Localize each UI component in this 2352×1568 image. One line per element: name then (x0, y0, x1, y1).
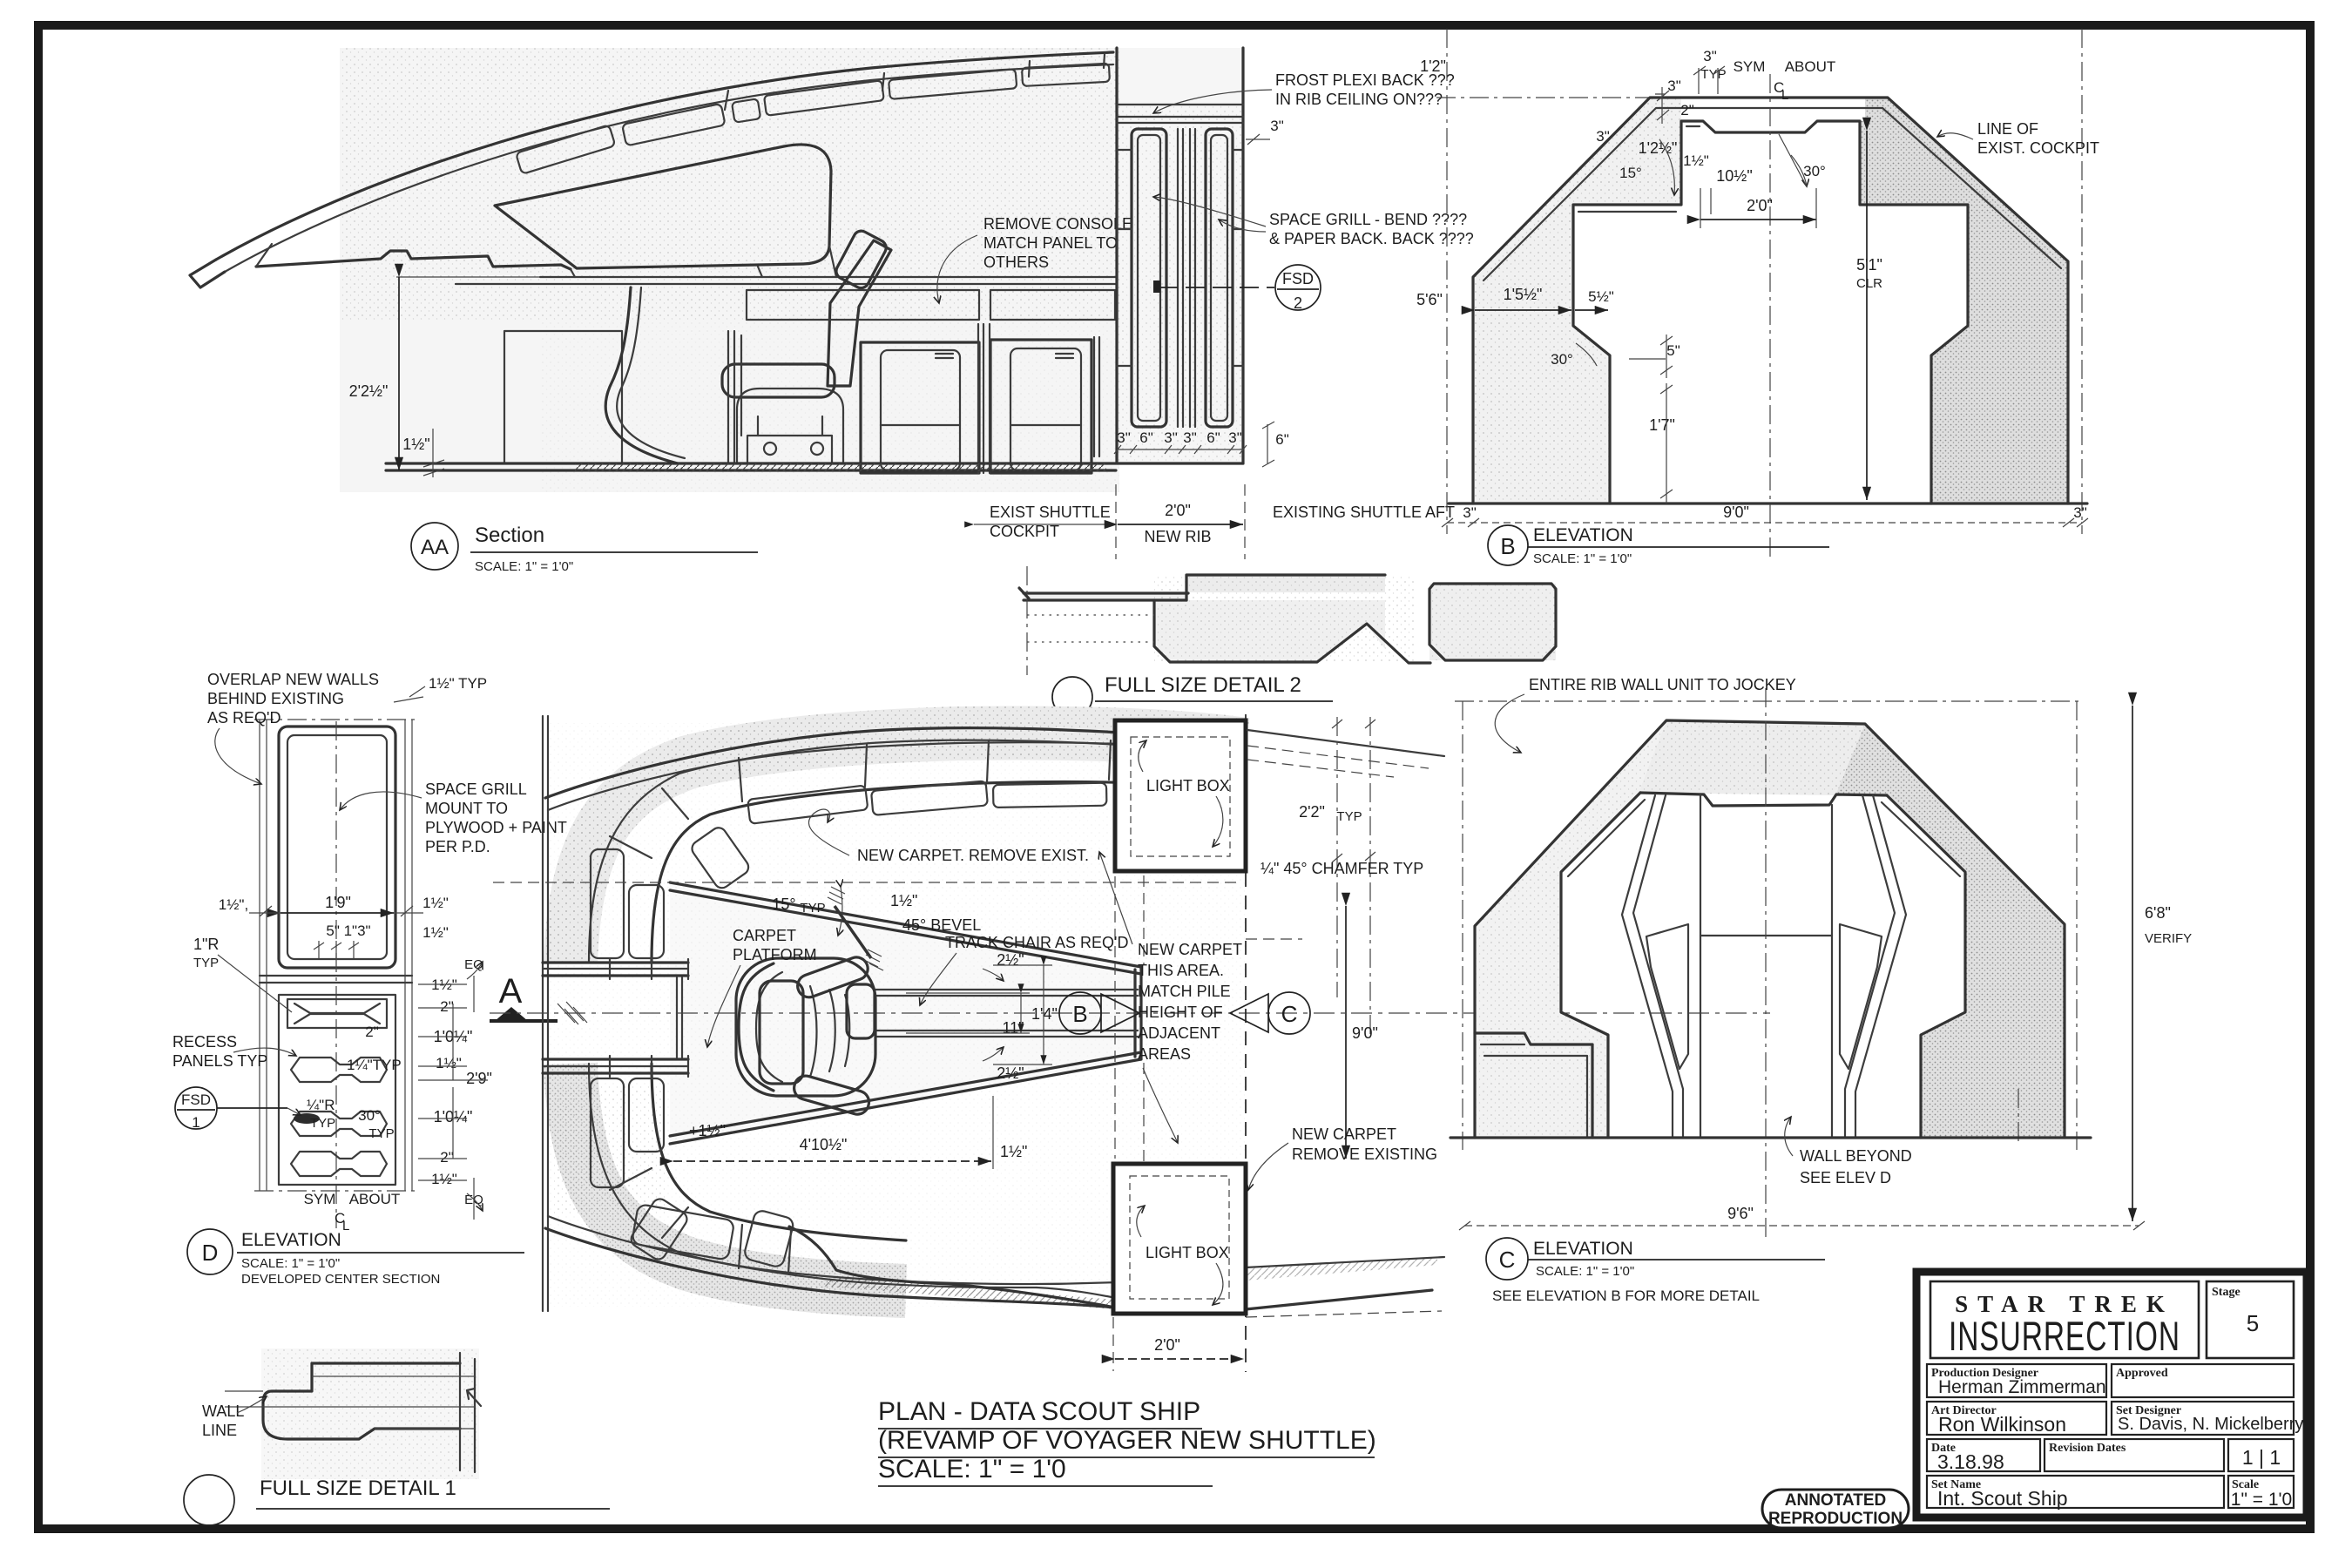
svg-text:EXISTING SHUTTLE AFT: EXISTING SHUTTLE AFT (1273, 504, 1455, 521)
svg-text:1½" TYP: 1½" TYP (429, 675, 487, 692)
svg-text:WALL BEYOND: WALL BEYOND (1800, 1147, 1912, 1165)
svg-text:Approved: Approved (2116, 1367, 2168, 1380)
svg-text:VERIFY: VERIFY (2145, 931, 2192, 946)
svg-text:2'2½": 2'2½" (349, 382, 389, 400)
svg-text:2: 2 (1294, 294, 1302, 312)
svg-text:3": 3" (1270, 118, 1284, 134)
svg-text:Int. Scout Ship: Int. Scout Ship (1937, 1487, 2068, 1510)
svg-text:5½": 5½" (1588, 288, 1614, 305)
svg-text:6": 6" (1139, 429, 1153, 446)
svg-text:L: L (1781, 88, 1788, 103)
svg-text:30°: 30° (1551, 351, 1573, 368)
svg-text:PLAN - DATA SCOUT SHIP: PLAN - DATA SCOUT SHIP (878, 1397, 1200, 1426)
svg-text:3": 3" (2073, 504, 2087, 521)
svg-text:9'6": 9'6" (1727, 1205, 1754, 1222)
svg-text:RECESS: RECESS (172, 1033, 237, 1051)
svg-text:ABOUT: ABOUT (349, 1191, 401, 1207)
svg-text:PLATFORM: PLATFORM (733, 946, 817, 963)
svg-text:ELEVATION: ELEVATION (241, 1230, 341, 1250)
svg-text:CLR: CLR (1856, 276, 1882, 291)
svg-text:3": 3" (1596, 128, 1610, 145)
svg-text:ELEVATION: ELEVATION (1533, 525, 1633, 545)
svg-text:9'0": 9'0" (1723, 504, 1749, 521)
svg-text:15°: 15° (772, 896, 795, 913)
svg-text:TYP: TYP (193, 956, 219, 970)
svg-text:5" 1"3": 5" 1"3" (326, 923, 370, 939)
svg-text:A: A (499, 972, 523, 1010)
svg-text:COCKPIT: COCKPIT (990, 523, 1059, 540)
svg-text:REMOVE EXISTING: REMOVE EXISTING (1292, 1146, 1437, 1163)
svg-text:B: B (1072, 1001, 1087, 1027)
svg-text:NEW CARPET. REMOVE EXIST.: NEW CARPET. REMOVE EXIST. (857, 847, 1089, 864)
svg-text:SCALE: 1" = 1'0": SCALE: 1" = 1'0" (1533, 551, 1632, 566)
svg-text:LINE OF: LINE OF (1977, 120, 2038, 138)
svg-text:ADJACENT: ADJACENT (1138, 1024, 1220, 1042)
svg-text:FULL SIZE DETAIL 2: FULL SIZE DETAIL 2 (1105, 673, 1301, 697)
svg-text:IN RIB CEILING ON???: IN RIB CEILING ON??? (1275, 91, 1443, 108)
svg-text:Stage: Stage (2212, 1286, 2240, 1299)
svg-text:EXIST SHUTTLE: EXIST SHUTTLE (990, 504, 1111, 521)
svg-text:FSD: FSD (1282, 270, 1314, 287)
svg-text:FULL SIZE DETAIL 1: FULL SIZE DETAIL 1 (260, 1477, 456, 1500)
svg-text:TYP: TYP (800, 901, 825, 916)
svg-text:Section: Section (475, 524, 544, 547)
svg-text:1½": 1½" (402, 436, 429, 453)
svg-text:Revision Dates: Revision Dates (2049, 1442, 2126, 1455)
svg-text:1'4": 1'4" (1031, 1005, 1058, 1023)
svg-text:(REVAMP OF VOYAGER NEW SHUTTLE: (REVAMP OF VOYAGER NEW SHUTTLE) (878, 1426, 1376, 1455)
svg-text:SEE ELEV D: SEE ELEV D (1800, 1169, 1891, 1186)
svg-text:2": 2" (1680, 102, 1694, 118)
svg-text:1'7": 1'7" (1649, 416, 1675, 434)
svg-text:6'8": 6'8" (2145, 904, 2171, 922)
svg-text:6": 6" (1206, 429, 1220, 446)
svg-text:1½": 1½" (890, 892, 917, 909)
svg-text:Herman Zimmerman: Herman Zimmerman (1938, 1377, 2106, 1397)
svg-text:1½": 1½" (436, 1055, 462, 1071)
svg-text:MATCH PILE: MATCH PILE (1138, 983, 1231, 1000)
svg-text:PLYWOOD + PAINT: PLYWOOD + PAINT (425, 819, 567, 836)
svg-text:SYM: SYM (304, 1191, 336, 1207)
svg-text:1'9": 1'9" (325, 894, 351, 911)
svg-text:6": 6" (1275, 431, 1289, 448)
svg-text:L: L (342, 1219, 349, 1233)
svg-text:3.18.98: 3.18.98 (1937, 1450, 2004, 1473)
svg-text:ABOUT: ABOUT (1785, 58, 1836, 75)
svg-text:ELEVATION: ELEVATION (1533, 1239, 1633, 1259)
svg-text:ANNOTATED: ANNOTATED (1785, 1491, 1886, 1510)
svg-text:5": 5" (1666, 342, 1680, 359)
svg-text:SCALE: 1" = 1'0: SCALE: 1" = 1'0 (878, 1455, 1066, 1484)
svg-text:B: B (1500, 533, 1515, 559)
svg-text:PER P.D.: PER P.D. (425, 838, 490, 855)
svg-text:3": 3" (1164, 429, 1178, 446)
svg-text:OVERLAP NEW WALLS: OVERLAP NEW WALLS (207, 671, 379, 688)
svg-text:1'5½": 1'5½" (1504, 286, 1543, 303)
svg-text:1½": 1½" (431, 1171, 457, 1187)
svg-text:SCALE: 1" = 1'0": SCALE: 1" = 1'0" (1536, 1264, 1634, 1279)
svg-text:1" = 1'0: 1" = 1'0 (2231, 1490, 2292, 1510)
svg-text:2'0": 2'0" (1154, 1336, 1180, 1354)
svg-text:Ron Wilkinson: Ron Wilkinson (1938, 1413, 2066, 1436)
svg-text:TYP: TYP (1336, 809, 1362, 824)
svg-text:2'9": 2'9" (466, 1070, 492, 1087)
svg-text:S. Davis, N. Mickelberry: S. Davis, N. Mickelberry (2118, 1415, 2303, 1434)
svg-text:30°: 30° (1803, 163, 1826, 179)
svg-text:LINE: LINE (202, 1422, 237, 1439)
svg-text:4'10½": 4'10½" (800, 1136, 848, 1153)
svg-text:LIGHT BOX: LIGHT BOX (1146, 777, 1230, 794)
svg-text:& PAPER BACK. BACK ????: & PAPER BACK. BACK ???? (1269, 230, 1474, 247)
svg-text:TYP: TYP (368, 1126, 394, 1141)
svg-text:AS REQ'D: AS REQ'D (207, 709, 280, 727)
svg-text:5'6": 5'6" (1416, 291, 1443, 308)
svg-text:10½": 10½" (1716, 167, 1752, 185)
svg-text:LIGHT BOX: LIGHT BOX (1146, 1244, 1229, 1261)
svg-text:SPACE GRILL - BEND ????: SPACE GRILL - BEND ???? (1269, 211, 1467, 228)
svg-text:MATCH PANEL TO: MATCH PANEL TO (983, 234, 1118, 252)
svg-text:3": 3" (1183, 429, 1197, 446)
svg-text:SYM: SYM (1734, 58, 1766, 75)
svg-text:HEIGHT OF: HEIGHT OF (1138, 1004, 1223, 1021)
svg-text:SEE ELEVATION B FOR MORE DETAI: SEE ELEVATION B FOR MORE DETAIL (1492, 1288, 1760, 1304)
svg-text:3": 3" (1703, 48, 1717, 64)
svg-text:AREAS: AREAS (1138, 1045, 1191, 1063)
svg-text:CARPET: CARPET (733, 927, 796, 944)
svg-text:2": 2" (365, 1024, 379, 1040)
svg-text:REPRODUCTION: REPRODUCTION (1768, 1510, 1903, 1528)
svg-text:NEW CARPET: NEW CARPET (1292, 1125, 1396, 1143)
svg-text:ENTIRE RIB WALL UNIT TO JOCKEY: ENTIRE RIB WALL UNIT TO JOCKEY (1529, 676, 1796, 693)
svg-text:1'2½": 1'2½" (1639, 139, 1678, 157)
svg-text:1½",: 1½", (219, 896, 248, 913)
svg-text:SCALE: 1" = 1'0": SCALE: 1" = 1'0" (475, 559, 573, 574)
svg-text:SCALE: 1" = 1'0": SCALE: 1" = 1'0" (241, 1256, 340, 1271)
svg-text:1'2": 1'2" (1420, 57, 1446, 75)
svg-text:1¼"TYP: 1¼"TYP (347, 1057, 402, 1073)
svg-text:+1½": +1½" (689, 1122, 726, 1139)
svg-text:BEHIND EXISTING: BEHIND EXISTING (207, 690, 344, 707)
svg-text:THIS AREA.: THIS AREA. (1138, 962, 1224, 979)
svg-text:3": 3" (1117, 429, 1131, 446)
svg-text:5'1": 5'1" (1856, 256, 1882, 274)
svg-text:SPACE GRILL: SPACE GRILL (425, 781, 527, 798)
svg-text:5: 5 (2247, 1310, 2259, 1336)
svg-text:NEW CARPET: NEW CARPET (1138, 941, 1242, 958)
svg-text:2": 2" (440, 998, 454, 1015)
svg-text:1½": 1½" (422, 895, 449, 911)
svg-text:2'0": 2'0" (1165, 502, 1191, 519)
svg-text:30°: 30° (358, 1107, 381, 1124)
svg-text:2½": 2½" (997, 1064, 1024, 1082)
svg-text:2'2": 2'2" (1299, 803, 1325, 821)
svg-text:1 | 1: 1 | 1 (2242, 1446, 2281, 1469)
svg-text:AA: AA (421, 536, 449, 559)
svg-text:45° BEVEL: 45° BEVEL (902, 916, 981, 934)
svg-text:3": 3" (1228, 429, 1242, 446)
svg-text:REMOVE CONSOLE: REMOVE CONSOLE (983, 215, 1132, 233)
svg-text:2½": 2½" (997, 951, 1024, 969)
svg-text:EXIST. COCKPIT: EXIST. COCKPIT (1977, 139, 2099, 157)
svg-text:¼"R: ¼"R (307, 1097, 335, 1113)
svg-text:OTHERS: OTHERS (983, 253, 1049, 271)
svg-text:3": 3" (1463, 504, 1477, 521)
svg-text:FSD: FSD (181, 1092, 211, 1108)
svg-text:WALL: WALL (202, 1402, 244, 1420)
svg-text:TYP: TYP (310, 1116, 335, 1131)
svg-text:C: C (1499, 1247, 1516, 1273)
svg-text:1½": 1½" (1000, 1143, 1027, 1160)
svg-text:INSURRECTION: INSURRECTION (1949, 1313, 2180, 1359)
svg-text:1½": 1½" (422, 924, 449, 941)
svg-text:2'0": 2'0" (1747, 197, 1773, 214)
svg-text:2": 2" (440, 1149, 454, 1166)
svg-text:DEVELOPED CENTER SECTION: DEVELOPED CENTER SECTION (241, 1272, 440, 1287)
svg-text:1"R: 1"R (193, 936, 219, 953)
svg-text:PANELS TYP: PANELS TYP (172, 1052, 267, 1070)
svg-text:D: D (202, 1240, 219, 1266)
svg-text:C: C (1281, 1001, 1298, 1027)
svg-text:1½": 1½" (1683, 152, 1709, 169)
svg-text:MOUNT TO: MOUNT TO (425, 800, 508, 817)
svg-text:3": 3" (1667, 78, 1681, 94)
svg-text:NEW RIB: NEW RIB (1144, 528, 1211, 545)
svg-text:TRACK CHAIR AS REQ'D: TRACK CHAIR AS REQ'D (945, 934, 1128, 951)
svg-text:15°: 15° (1619, 165, 1642, 181)
svg-text:9'0": 9'0" (1352, 1024, 1378, 1042)
svg-text:¼" 45° CHAMFER TYP: ¼" 45° CHAMFER TYP (1260, 860, 1423, 877)
svg-text:1: 1 (192, 1114, 199, 1131)
